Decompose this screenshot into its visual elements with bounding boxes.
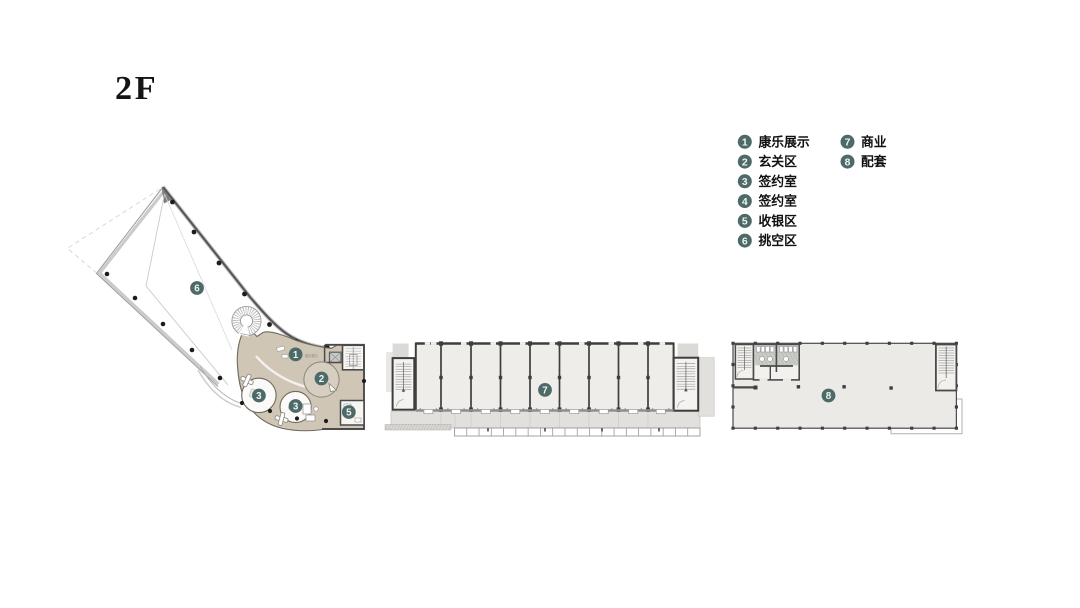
svg-text:3: 3 (742, 177, 748, 188)
svg-text:5: 5 (742, 217, 748, 228)
svg-text:签约室: 签约室 (758, 174, 798, 189)
svg-text:挑空区: 挑空区 (759, 233, 798, 248)
svg-text:1: 1 (293, 350, 299, 361)
svg-text:1: 1 (742, 138, 748, 149)
svg-text:6: 6 (194, 284, 200, 295)
svg-text:康乐展示: 康乐展示 (305, 353, 318, 358)
svg-text:3: 3 (256, 391, 262, 402)
svg-text:2: 2 (319, 374, 325, 385)
svg-text:收银区: 收银区 (759, 214, 798, 229)
svg-text:配套: 配套 (861, 154, 887, 169)
svg-text:签约室: 签约室 (758, 194, 798, 209)
svg-text:4: 4 (742, 197, 748, 208)
svg-text:7: 7 (542, 385, 548, 396)
svg-text:2: 2 (742, 157, 748, 168)
svg-text:3: 3 (293, 402, 299, 413)
svg-text:玄关区: 玄关区 (759, 154, 798, 169)
svg-text:5: 5 (346, 408, 352, 419)
svg-text:8: 8 (826, 391, 832, 402)
svg-text:6: 6 (742, 236, 748, 247)
svg-text:康乐展示: 康乐展示 (759, 134, 810, 149)
svg-text:商业: 商业 (861, 134, 887, 149)
svg-text:2F: 2F (115, 70, 158, 107)
svg-text:8: 8 (845, 157, 851, 168)
svg-text:7: 7 (845, 138, 851, 149)
